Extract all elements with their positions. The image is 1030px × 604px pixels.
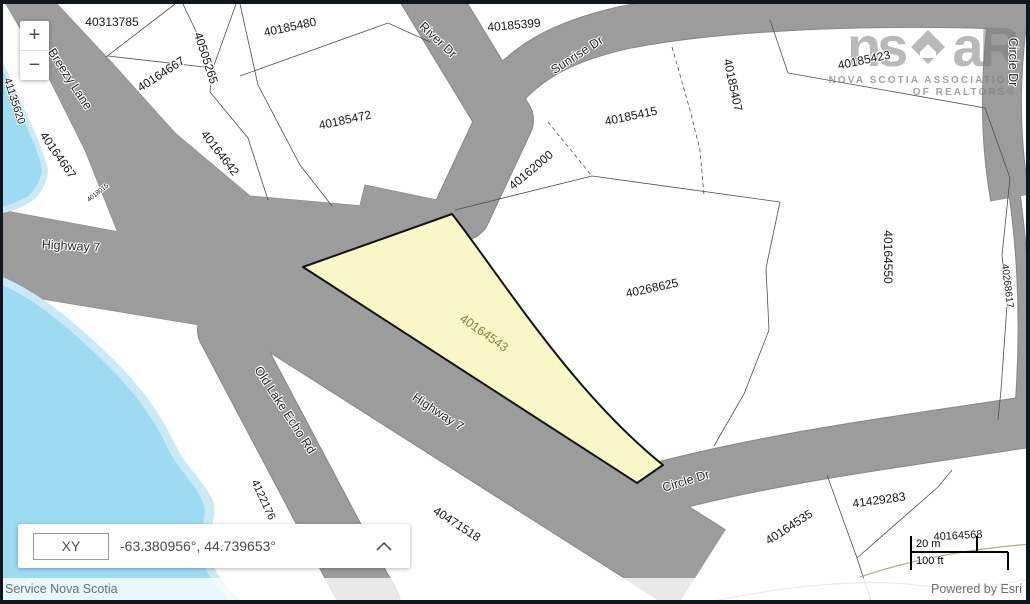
map-viewer: ns aR NOVA SCOTIA ASSOCIATION OF REALTOR…: [0, 0, 1030, 604]
coordinate-mode-button[interactable]: XY: [33, 533, 109, 560]
zoom-in-button[interactable]: +: [20, 21, 49, 50]
attribution-esri: Powered by Esri: [931, 582, 1022, 596]
attribution-source: Service Nova Scotia: [5, 582, 118, 596]
coordinate-panel: XY -63.380956°, 44.739653°: [18, 524, 410, 568]
zoom-control: + −: [20, 21, 49, 80]
attribution-bar: Service Nova Scotia Powered by Esri: [0, 578, 1030, 600]
chevron-up-icon: [376, 542, 392, 551]
map-canvas[interactable]: [0, 0, 1030, 604]
scale-imperial-label: 100 ft: [916, 555, 944, 567]
scale-metric-label: 20 m: [916, 538, 940, 550]
zoom-out-button[interactable]: −: [20, 51, 49, 80]
coordinate-value: -63.380956°, 44.739653°: [120, 538, 376, 554]
collapse-panel-button[interactable]: [376, 542, 392, 551]
